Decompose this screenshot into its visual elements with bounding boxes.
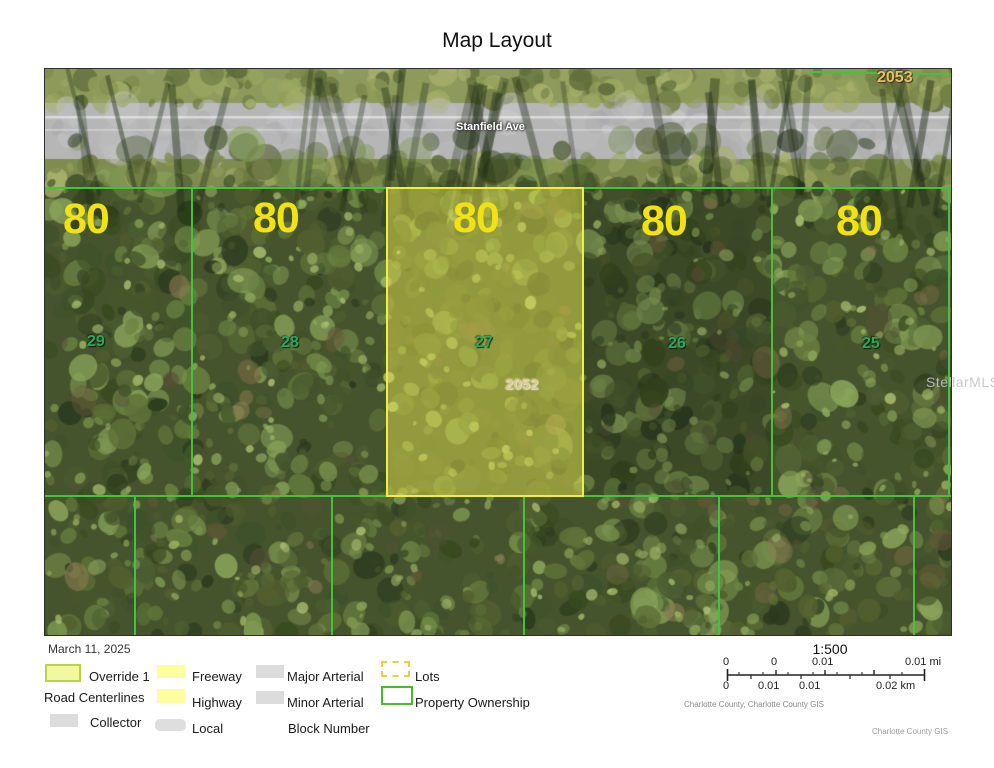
legend-block-number: Block Number bbox=[288, 722, 370, 735]
page-title: Map Layout bbox=[0, 29, 994, 53]
parcel-number-27[interactable]: 27 bbox=[475, 335, 493, 351]
minor-arterial-swatch bbox=[256, 691, 284, 704]
parcel-line-26-25 bbox=[771, 187, 773, 497]
parcel-line-lower-3 bbox=[523, 495, 525, 635]
parcel-line-lower-1 bbox=[134, 495, 136, 635]
parcel-line-lower-2 bbox=[331, 495, 333, 635]
legend-lots: Lots bbox=[415, 670, 440, 683]
parcel-line-lower-4 bbox=[718, 495, 720, 635]
major-arterial-swatch bbox=[256, 665, 284, 678]
property-ownership-swatch bbox=[381, 686, 413, 705]
scale-km-2: 0.01 bbox=[799, 681, 820, 692]
legend-freeway: Freeway bbox=[192, 670, 242, 683]
lot-width-label-25: 80 bbox=[836, 200, 882, 243]
lot-width-label-27: 80 bbox=[453, 197, 499, 240]
attribution: Charlotte County, Charlotte County GIS bbox=[684, 701, 824, 709]
legend-highway: Highway bbox=[192, 696, 242, 709]
scale-bar bbox=[726, 666, 928, 682]
freeway-swatch bbox=[157, 665, 185, 678]
parcel-number-25[interactable]: 25 bbox=[862, 336, 880, 352]
legend-road-centerlines: Road Centerlines bbox=[44, 691, 144, 704]
watermark: StellarMLS bbox=[926, 374, 994, 390]
collector-swatch bbox=[50, 714, 78, 727]
legend-override: Override 1 bbox=[89, 670, 150, 683]
block-number-2053: 2053 bbox=[877, 70, 913, 86]
legend-collector: Collector bbox=[90, 716, 141, 729]
parcel-line-29-28 bbox=[191, 187, 193, 497]
legend-local: Local bbox=[192, 722, 223, 735]
scale-ratio: 1:500 bbox=[790, 641, 870, 657]
parcel-line-lower-5 bbox=[913, 495, 915, 635]
lots-swatch bbox=[381, 661, 410, 677]
lot-width-label-26: 80 bbox=[641, 200, 687, 243]
local-swatch bbox=[155, 719, 186, 731]
scale-km-1: 0.01 bbox=[758, 681, 779, 692]
gis-credit: Charlotte County GIS bbox=[872, 728, 948, 736]
scale-km-3: 0.02 km bbox=[876, 681, 915, 692]
map-viewport[interactable]: Stanfield Ave 2053 2052 80 80 80 80 80 2… bbox=[44, 68, 952, 636]
legend-major-arterial: Major Arterial bbox=[287, 670, 364, 683]
legend-minor-arterial: Minor Arterial bbox=[287, 696, 364, 709]
block-number-2052: 2052 bbox=[505, 377, 538, 392]
highway-swatch bbox=[157, 689, 185, 703]
legend-property-ownership: Property Ownership bbox=[415, 696, 530, 709]
lot-width-label-29: 80 bbox=[63, 198, 109, 241]
street-label: Stanfield Ave bbox=[456, 122, 525, 133]
parcel-number-29[interactable]: 29 bbox=[87, 334, 105, 350]
map-date: March 11, 2025 bbox=[48, 642, 131, 656]
scale-km-0: 0 bbox=[723, 681, 729, 692]
override-swatch bbox=[45, 664, 81, 682]
parcel-number-26[interactable]: 26 bbox=[668, 336, 686, 352]
parcel-line-right bbox=[948, 187, 950, 497]
lot-width-label-28: 80 bbox=[253, 197, 299, 240]
parcel-number-28[interactable]: 28 bbox=[281, 335, 299, 351]
